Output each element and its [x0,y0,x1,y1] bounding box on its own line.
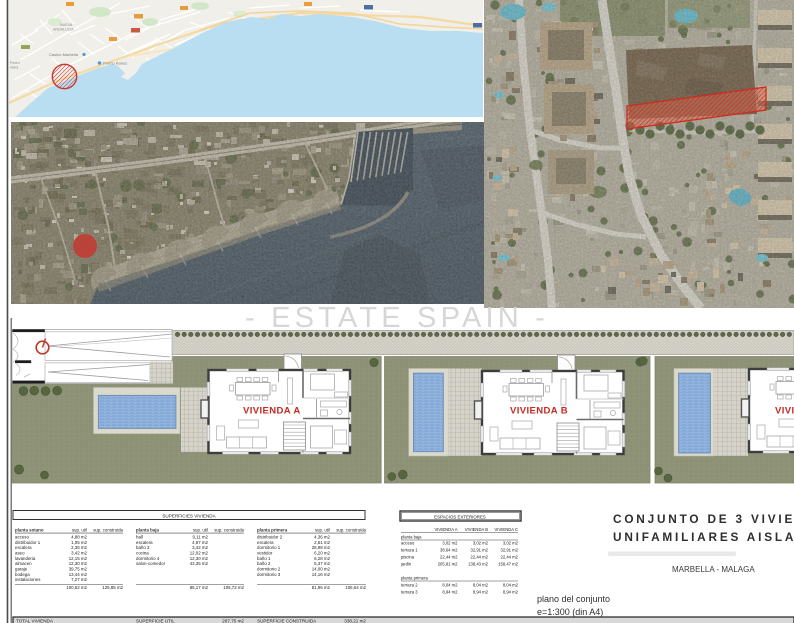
svg-text:planta primera: planta primera [257,528,288,533]
svg-text:bodega: bodega [15,572,30,577]
svg-text:jardin: jardin [400,562,412,567]
svg-text:acceso: acceso [15,535,29,540]
svg-text:4,97 m2: 4,97 m2 [192,540,208,545]
svg-text:8,94 m2: 8,94 m2 [442,590,458,595]
svg-text:terraza 2: terraza 2 [401,583,418,588]
svg-text:28,98 m2: 28,98 m2 [312,545,331,550]
svg-text:39,75 m2: 39,75 m2 [69,566,88,571]
svg-text:plano del conjunto: plano del conjunto [537,594,610,604]
svg-text:2,61 m2: 2,61 m2 [314,540,330,545]
svg-text:instalaciones: instalaciones [15,577,41,582]
svg-text:distribuidor 2: distribuidor 2 [257,535,283,540]
svg-text:baño 2: baño 2 [257,561,271,566]
svg-text:2,36 m2: 2,36 m2 [71,545,87,550]
svg-text:planta primera: planta primera [401,576,428,581]
svg-text:vestidor: vestidor [257,550,273,555]
svg-text:8,04 m2: 8,04 m2 [473,583,489,588]
svg-text:22,44 m2: 22,44 m2 [440,555,458,560]
svg-text:205,81 m2: 205,81 m2 [438,562,458,567]
svg-text:garaje: garaje [15,566,28,571]
svg-text:38,64 m2: 38,64 m2 [440,548,458,553]
svg-text:baño 3: baño 3 [136,545,150,550]
svg-text:12,30 m2: 12,30 m2 [69,561,88,566]
svg-text:VIVIENDA C: VIVIENDA C [775,406,794,417]
svg-text:Puerto Banus: Puerto Banus [103,61,127,66]
svg-text:hall: hall [136,535,143,540]
svg-text:85,17 m2: 85,17 m2 [190,585,209,590]
svg-text:e=1:300 (din A4): e=1:300 (din A4) [537,607,603,617]
svg-text:SUPERFICIE CONSTRUIDA: SUPERFICIE CONSTRUIDA [257,619,317,623]
svg-text:32,91 m2: 32,91 m2 [501,548,519,553]
svg-text:100,62 m2: 100,62 m2 [66,585,87,590]
svg-text:12,02 m2: 12,02 m2 [190,550,209,555]
svg-text:VIVIENDA A: VIVIENDA A [434,527,457,532]
svg-text:aseo: aseo [15,550,25,555]
svg-text:43,35 m2: 43,35 m2 [190,561,209,566]
svg-text:dormitorio 3: dormitorio 3 [257,572,281,577]
svg-text:158,47 m2: 158,47 m2 [498,562,518,567]
svg-text:planta baja: planta baja [136,528,159,533]
svg-text:14,00 m2: 14,00 m2 [312,566,331,571]
svg-text:5,37 m2: 5,37 m2 [314,561,330,566]
svg-text:- ESTATE SPAIN -: - ESTATE SPAIN - [245,302,549,334]
svg-text:81,96 m2: 81,96 m2 [312,585,331,590]
svg-text:sup. util: sup. util [193,528,208,533]
svg-text:dormitorio 4: dormitorio 4 [136,556,160,561]
svg-text:14,16 m2: 14,16 m2 [312,572,331,577]
svg-text:3,42 m2: 3,42 m2 [192,545,208,550]
svg-text:Casino Marbella: Casino Marbella [49,52,79,57]
svg-text:VIVIENDA A: VIVIENDA A [243,406,301,417]
svg-text:CONJUNTO DE 3 VIVIENDAS: CONJUNTO DE 3 VIVIENDAS [613,512,794,526]
svg-text:escalera: escalera [136,540,153,545]
svg-text:escalera: escalera [257,540,274,545]
svg-text:13,44 m2: 13,44 m2 [69,572,88,577]
svg-text:12,15 m2: 12,15 m2 [69,556,88,561]
svg-text:3,42 m2: 3,42 m2 [71,550,87,555]
svg-text:6,20 m2: 6,20 m2 [314,550,330,555]
svg-text:338,21 m2: 338,21 m2 [344,619,366,623]
svg-text:106,64 m2: 106,64 m2 [345,585,366,590]
svg-text:4,88 m2: 4,88 m2 [71,535,87,540]
svg-text:UNIFAMILIARES AISLADAS: UNIFAMILIARES AISLADAS [613,530,794,544]
svg-text:cocina: cocina [136,550,149,555]
svg-text:TOTAL VIVIENDA: TOTAL VIVIENDA [16,619,54,623]
svg-text:Pedro: Pedro [10,61,20,65]
svg-text:sup. util: sup. util [315,528,330,533]
svg-text:lavanderia: lavanderia [15,556,36,561]
svg-text:8,94 m2: 8,94 m2 [473,590,489,595]
svg-text:SUPERFICIES VIVIENDA: SUPERFICIES VIVIENDA [162,513,216,518]
svg-text:8,04 m2: 8,04 m2 [442,583,458,588]
svg-text:7,27 m2: 7,27 m2 [71,577,87,582]
svg-text:22,44 m2: 22,44 m2 [471,555,489,560]
svg-text:22,44 m2: 22,44 m2 [501,555,519,560]
svg-text:12,30 m2: 12,30 m2 [190,556,209,561]
svg-text:125,85 m2: 125,85 m2 [102,585,123,590]
svg-text:8,94 m2: 8,94 m2 [503,590,519,595]
svg-text:1,05 m2: 1,05 m2 [71,540,87,545]
svg-text:VIVIENDA C: VIVIENDA C [494,527,518,532]
svg-text:dormitorio 2: dormitorio 2 [257,566,281,571]
svg-text:baño 1: baño 1 [257,556,271,561]
svg-text:267,75 m2: 267,75 m2 [222,619,244,623]
svg-text:ANDALUCIA: ANDALUCIA [53,28,74,32]
svg-text:sup. construida: sup. construida [336,528,366,533]
svg-text:3,02 m2: 3,02 m2 [503,541,519,546]
svg-text:32,91 m2: 32,91 m2 [471,548,489,553]
svg-text:8,04 m2: 8,04 m2 [503,583,519,588]
svg-text:sup. construida: sup. construida [93,528,123,533]
svg-text:piscina: piscina [401,555,415,560]
svg-text:terraza 3: terraza 3 [401,590,418,595]
svg-text:planta sotano: planta sotano [15,528,44,533]
svg-text:VIVIENDA B: VIVIENDA B [465,527,488,532]
svg-text:138,43 m2: 138,43 m2 [468,562,488,567]
svg-text:MARBELLA - MALAGA: MARBELLA - MALAGA [672,565,755,574]
svg-text:escalera: escalera [15,545,32,550]
svg-text:distribuidor 1: distribuidor 1 [15,540,41,545]
svg-text:VIVIENDA B: VIVIENDA B [510,406,568,417]
svg-text:9,11 m2: 9,11 m2 [192,535,208,540]
svg-text:4,36 m2: 4,36 m2 [314,535,330,540]
svg-text:SUPERFICIE UTIL: SUPERFICIE UTIL [136,619,175,623]
svg-text:almacen: almacen [15,561,32,566]
svg-text:planta baja: planta baja [401,534,422,539]
svg-text:acceso: acceso [401,541,415,546]
svg-text:3,02 m2: 3,02 m2 [473,541,489,546]
svg-text:salon-comedor: salon-comedor [136,561,166,566]
svg-text:terraza 1: terraza 1 [401,548,418,553]
svg-text:105,72 m2: 105,72 m2 [223,585,244,590]
svg-text:sup. construida: sup. construida [214,528,244,533]
svg-text:dormitorio 1: dormitorio 1 [257,545,281,550]
svg-text:3,02 m2: 3,02 m2 [442,541,458,546]
svg-text:ESPACIOS EXTERIORES: ESPACIOS EXTERIORES [434,514,486,519]
svg-text:6,28 m2: 6,28 m2 [314,556,330,561]
svg-text:NUEVA: NUEVA [60,23,73,27]
svg-text:sup. util: sup. util [72,528,87,533]
svg-text:ntara: ntara [10,66,18,70]
